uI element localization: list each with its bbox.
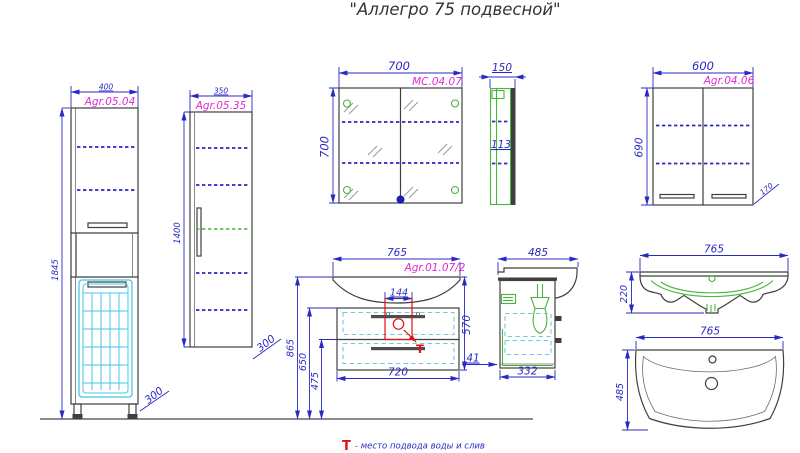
vanity-total-height-dim: 865	[286, 339, 297, 357]
wall-cabinet-width-dim: 600	[692, 59, 714, 73]
tall-column-code: Agr.05.35	[195, 100, 247, 112]
vanity-height-dim: 570	[461, 315, 473, 335]
tall-column-width-dim: 350	[214, 87, 229, 96]
mirror-side-shelf-dim: 113	[491, 139, 511, 151]
basin-top-drawing: 765 485	[615, 326, 784, 431]
wall-bracket	[555, 316, 562, 321]
tall-basket-cabinet-drawing: 400 Agr.05.04 1845 300	[51, 83, 169, 420]
wall-gap-dim: 41	[466, 353, 479, 365]
basket-grid	[83, 293, 128, 390]
wall-cabinet-drawing: 600 Agr.04.06 690 170	[634, 59, 780, 205]
legend-symbol: Т	[342, 439, 351, 453]
mirror-cabinet-side-drawing: 150 113	[479, 62, 526, 205]
tall-column-height-dim: 1400	[173, 222, 183, 244]
page-title: "Аллегро 75 подвесной"	[349, 0, 560, 19]
vanity-front-drawing: 765 Agr.01.07/2 144 Т 570 41 720 865 650…	[286, 247, 498, 419]
wall-cabinet-depth-dim: 170	[758, 181, 775, 197]
mirror-width-dim: 700	[388, 59, 410, 73]
vanity-body-top-height-dim: 650	[298, 353, 309, 371]
legend: Т - место подвода воды и слив	[342, 439, 485, 453]
basin-front-height-dim: 220	[619, 285, 630, 303]
basin-top-depth-dim: 485	[615, 383, 626, 401]
drain-circle	[393, 319, 403, 329]
hinge-circle	[344, 100, 351, 107]
mirror-cabinet-drawing: 700 МС.04.07 700	[318, 59, 463, 204]
vanity-code: Agr.01.07/2	[404, 262, 466, 274]
vanity-body-width-dim: 720	[388, 367, 408, 379]
vanity-width-dim: 765	[387, 247, 407, 259]
mirror-height-dim: 700	[318, 136, 332, 158]
basin-top-width-dim: 765	[700, 326, 720, 338]
technical-drawing-sheet: "Аллегро 75 подвесной" 400 Agr.05.04 184…	[0, 0, 800, 453]
wall-bracket	[555, 338, 562, 343]
door-knob	[397, 196, 405, 204]
hinge-circle	[344, 187, 351, 194]
hinge-circle	[452, 187, 459, 194]
tall-basket-height-dim: 1845	[51, 259, 61, 281]
basin-front-drawing: 765 220	[619, 244, 788, 314]
tall-basket-width-dim: 400	[99, 83, 114, 92]
siphon-top	[531, 298, 549, 309]
vanity-side-drawing: 485 332	[498, 247, 578, 380]
wall-cabinet-height-dim: 690	[634, 137, 646, 157]
mirror-code: МС.04.07	[412, 76, 462, 88]
drain-hole	[706, 378, 718, 390]
basin-front-width-dim: 765	[704, 244, 724, 256]
siphon-bottle	[533, 309, 547, 334]
drawing-canvas: "Аллегро 75 подвесной" 400 Agr.05.04 184…	[0, 0, 800, 453]
tall-basket-depth-dim: 300	[143, 385, 166, 407]
mirror-glass-hatch	[344, 100, 452, 200]
vanity-divider-height-dim: 475	[310, 372, 321, 390]
drain-zone-width-dim: 144	[390, 288, 408, 299]
faucet-hole	[709, 356, 716, 363]
tall-column-cabinet-drawing: 350 Agr.05.35 1400 300	[173, 87, 281, 360]
tall-column-depth-dim: 300	[255, 333, 278, 355]
vanity-side-depth-dim: 332	[517, 366, 537, 378]
hinge-circle	[452, 100, 459, 107]
tall-basket-code: Agr.05.04	[84, 96, 136, 108]
mirror-side-width-dim: 150	[492, 62, 512, 74]
vanity-side-width-dim: 485	[528, 247, 548, 259]
water-point-symbol: Т	[416, 342, 424, 356]
legend-text: - место подвода воды и слив	[355, 442, 485, 452]
wall-cabinet-code: Agr.04.06	[703, 75, 755, 87]
